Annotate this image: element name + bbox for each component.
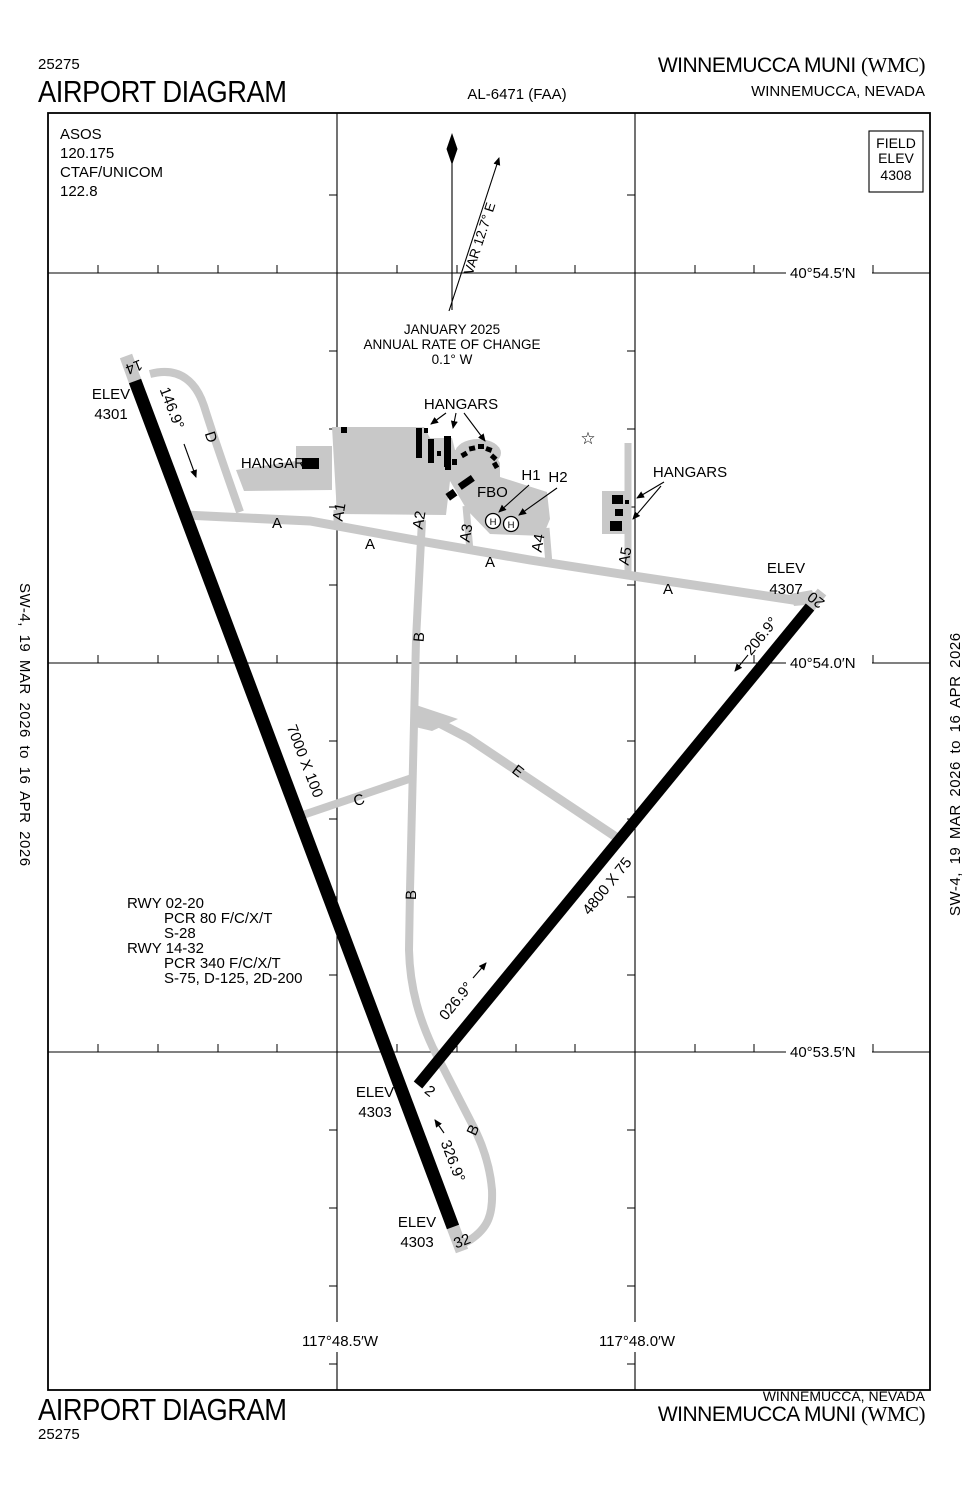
field-elev-value: 4308 [880, 167, 911, 183]
hangars-north-arrow-3-icon [464, 413, 485, 441]
helipad-h2-glyph: H [508, 520, 515, 531]
helipad-h2-label: H2 [548, 469, 567, 486]
hangars-east-label: HANGARS [653, 464, 727, 481]
page-title-bottom: AIRPORT DIAGRAM [38, 1392, 287, 1428]
runway-data-block: RWY 02-20 PCR 80 F/C/X/T S-28 RWY 14-32 … [127, 895, 302, 987]
airport-diagram-map: VAR 12.7° E JANUARY 2025 ANNUAL RATE OF … [0, 0, 978, 1500]
taxiway-a-label-2: A [365, 536, 375, 553]
airport-name-text-bottom: WINNEMUCCA MUNI [658, 1403, 856, 1426]
ctaf-label: CTAF/UNICOM [60, 164, 163, 181]
taxiways-and-aprons [126, 356, 822, 1251]
field-elevation-box: FIELD ELEV 4308 [869, 131, 923, 192]
west-hangar-label: HANGAR [241, 455, 305, 472]
east-hangar-1 [612, 495, 623, 504]
rwy-1432-strength: S-75, D-125, 2D-200 [164, 970, 302, 987]
airport-name-bottom: WINNEMUCCA MUNI (WMC) [658, 1402, 925, 1427]
latitude-label-2: 40°54.0′N [790, 655, 856, 672]
latitude-label-3: 40°53.5′N [790, 1044, 856, 1061]
runway32-heading: 326.9° [437, 1138, 468, 1185]
latitude-label-1: 40°54.5′N [790, 265, 856, 282]
runway-02-20 [418, 607, 810, 1085]
hangars-north-arrow-2-icon [453, 413, 456, 428]
hangars-north-arrow-1-icon [431, 413, 446, 424]
hangars-north-label: HANGARS [424, 396, 498, 413]
airport-code-text-bottom: (WMC) [861, 1402, 925, 1426]
ctaf-frequency: 122.8 [60, 183, 98, 200]
elev14-value: 4301 [94, 406, 127, 423]
asos-label: ASOS [60, 126, 102, 143]
elev20-value: 4307 [769, 581, 802, 598]
hangars-east-arrow-2-icon [633, 486, 661, 519]
taxiway-a1-label: A1 [330, 502, 350, 523]
compass-rate-value: 0.1° W [432, 352, 473, 367]
elev32-value: 4303 [400, 1234, 433, 1251]
variation-label: VAR 12.7° E [461, 201, 498, 277]
taxiway-a-label-1: A [272, 515, 282, 532]
hangar-row-3 [444, 436, 451, 467]
graticule-ticks [98, 195, 873, 1364]
east-hangar-3 [610, 521, 622, 531]
elev2-label: ELEV [356, 1084, 394, 1101]
taxiway-a3-label: A3 [457, 523, 477, 544]
north-arrow-group: VAR 12.7° E JANUARY 2025 ANNUAL RATE OF … [363, 133, 540, 367]
hangar-row-2 [428, 439, 434, 463]
field-elev-line1: FIELD [876, 135, 916, 151]
elev14-label: ELEV [92, 386, 130, 403]
asos-frequency: 120.175 [60, 145, 114, 162]
taxiway-b-label-2: B [403, 890, 420, 901]
taxiway-a4-label: A4 [529, 533, 549, 554]
runway2-heading-arrow-icon [473, 963, 486, 978]
longitude-label-2: 117°48.0′W [599, 1333, 676, 1350]
east-hangar-2 [615, 509, 623, 516]
compass-rate-label: ANNUAL RATE OF CHANGE [363, 337, 540, 352]
compass-date: JANUARY 2025 [404, 322, 500, 337]
elev32-label: ELEV [398, 1214, 436, 1231]
taxiway-a-label-4: A [663, 581, 673, 598]
field-elev-line2: ELEV [878, 150, 914, 166]
elev2-value: 4303 [358, 1104, 391, 1121]
hangar-row-1 [416, 428, 422, 458]
fbo-label: FBO [477, 484, 508, 501]
hangars-east-arrow-1-icon [637, 482, 664, 498]
runway14-heading: 146.9° [156, 385, 187, 432]
taxiway-b-label-1: B [411, 631, 429, 642]
taxiway-labels: A A A A A1 A2 A3 A4 A5 B B B C D E [201, 429, 673, 1138]
taxiway-a-label-3: A [485, 554, 495, 571]
longitude-label-1: 117°48.5′W [302, 1333, 379, 1350]
helipad-h1-glyph: H [490, 517, 497, 528]
helipad-h1-label: H1 [521, 467, 540, 484]
runway14-heading-arrow-icon [184, 444, 196, 477]
taxiway-a2-label: A2 [410, 510, 430, 531]
taxiway-a5-label: A5 [616, 546, 636, 567]
north-arrow-icon [447, 133, 458, 165]
elev20-label: ELEV [767, 560, 805, 577]
comm-info-block: ASOS 120.175 CTAF/UNICOM 122.8 [60, 126, 163, 200]
procedure-number-bottom: 25275 [38, 1426, 80, 1443]
runway32-heading-arrow-icon [435, 1120, 444, 1133]
beacon-star-icon: ☆ [580, 429, 595, 448]
